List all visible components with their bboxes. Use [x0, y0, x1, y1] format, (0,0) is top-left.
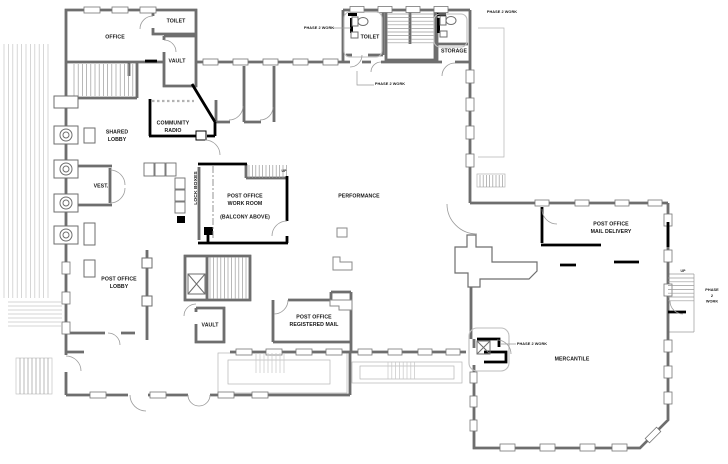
room-label-po-lobby: POST OFFICE LOBBY — [101, 275, 136, 291]
walls-new-phase — [145, 13, 686, 362]
room-label-po-work-room: POST OFFICE WORK ROOM — [227, 192, 262, 208]
room-label-vault-1: VAULT — [169, 57, 186, 65]
room-label-office: OFFICE — [105, 33, 124, 41]
phase2-work-label-5: PHASE 2 WORK — [517, 341, 547, 347]
phase2-work-label-3: PHASE 2 WORK — [375, 81, 405, 87]
room-label-lock-boxes: LOCK BOXES — [192, 171, 199, 204]
window-marks — [62, 7, 672, 452]
room-label-toilet-1: TOILET — [167, 17, 186, 25]
note-balcony-above: (BALCONY ABOVE) — [220, 213, 270, 221]
room-label-po-mail-delivery: POST OFFICE MAIL DELIVERY — [591, 220, 632, 236]
phase2-work-label-4: PHASE 2 WORK — [705, 287, 718, 304]
room-label-po-registered-mail: POST OFFICE REGISTERED MAIL — [290, 313, 339, 329]
walls-existing — [66, 10, 668, 448]
room-label-community-radio: COMMUNITY RADIO — [157, 119, 190, 135]
site-steps-hatch — [16, 28, 694, 394]
room-label-vestibule: VEST. — [94, 182, 109, 190]
floor-plan-canvas: OFFICE TOILET VAULT COMMUNITY RADIO SHAR… — [0, 0, 728, 464]
room-label-mercantile: MERCANTILE — [555, 355, 590, 363]
room-label-toilet-2: TOILET — [361, 33, 380, 41]
lock-boxes-units — [144, 163, 185, 213]
room-label-performance: PERFORMANCE — [338, 192, 379, 200]
room-label-storage: STORAGE — [441, 47, 467, 55]
stage-tower-outline — [455, 235, 537, 287]
phase2-work-label-2: PHASE 2 WORK — [487, 9, 517, 15]
room-label-shared-lobby: SHARED LOBBY — [106, 128, 128, 144]
phase2-work-label-1: PHASE 2 WORK — [304, 25, 334, 31]
stage-floor-pieces — [330, 228, 352, 310]
up-label-2: UP — [681, 268, 686, 273]
room-label-vault-2: VAULT — [202, 321, 219, 329]
up-label-1: UP — [282, 168, 287, 173]
chamfer-window — [645, 427, 661, 443]
